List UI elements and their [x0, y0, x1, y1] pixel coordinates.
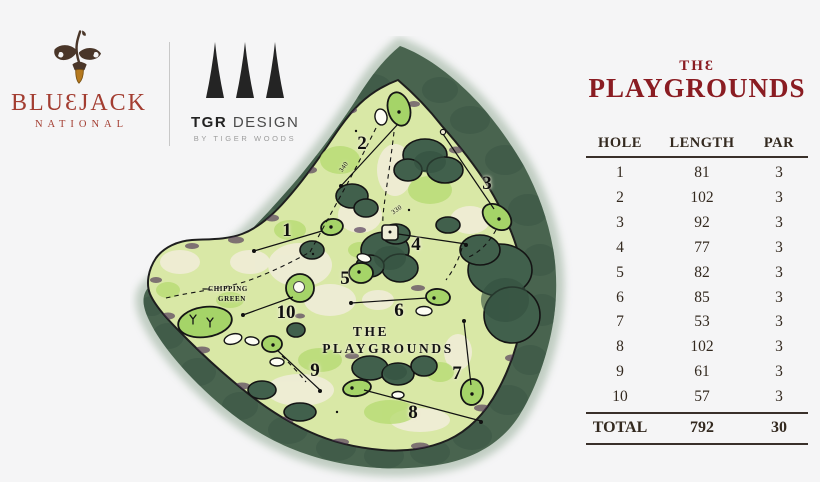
total-par: 30 [741, 414, 817, 441]
hole-cell: 5 [577, 261, 663, 286]
map-chipping-green-label-line2: GREEN [218, 295, 246, 303]
table-row: 10573 [577, 385, 817, 410]
acorn-oak-leaves-icon [46, 28, 112, 90]
hole-cell: 2 [577, 186, 663, 211]
length-cell: 82 [663, 261, 741, 286]
header-divider [586, 156, 808, 158]
map-hole-label-5: 5 [340, 268, 350, 290]
par-cell: 3 [741, 310, 817, 335]
hole-cell: 6 [577, 286, 663, 311]
map-hole-label-3: 3 [482, 173, 492, 195]
par-cell: 3 [741, 236, 817, 261]
map-hole-label-9: 9 [310, 360, 320, 382]
hole-cell: 3 [577, 211, 663, 236]
brand-name: BLUƐJACK [8, 92, 150, 114]
map-course-title-line2: PLAYGROUNDS [322, 341, 454, 357]
scorecard-title-line2: PLAYGROUNDS [577, 75, 817, 101]
map-course-title-line1: THE [353, 324, 389, 340]
par-cell: 3 [741, 186, 817, 211]
map-hole-label-6: 6 [394, 300, 404, 322]
length-cell: 77 [663, 236, 741, 261]
length-cell: 85 [663, 286, 741, 311]
par-cell: 3 [741, 161, 817, 186]
map-hole-label-8: 8 [408, 402, 418, 424]
length-cell: 53 [663, 310, 741, 335]
length-cell: 61 [663, 360, 741, 385]
course-map-svg [130, 36, 575, 482]
length-cell: 81 [663, 161, 741, 186]
hole-cell: 1 [577, 161, 663, 186]
map-hole-label-4: 4 [411, 234, 421, 256]
par-cell: 3 [741, 360, 817, 385]
table-row: 6853 [577, 286, 817, 311]
scorecard: THƐ PLAYGROUNDS HOLE LENGTH PAR 1813 210… [577, 58, 817, 445]
par-cell: 3 [741, 211, 817, 236]
table-row: 4773 [577, 236, 817, 261]
par-cell: 3 [741, 335, 817, 360]
tee-circle [440, 129, 445, 134]
hole-cell: 9 [577, 360, 663, 385]
page: { "brand": { "name": "BLUƐJACK", "subtit… [0, 0, 820, 481]
map-hole-label-7: 7 [452, 363, 462, 385]
total-row: TOTAL 792 30 [577, 414, 817, 441]
green-center-bunker [294, 282, 305, 293]
table-row: 7533 [577, 310, 817, 335]
table-row: 5823 [577, 261, 817, 286]
hole-cell: 8 [577, 335, 663, 360]
map-chipping-green-label-line1: CHIPPING [208, 285, 248, 293]
column-header-length: LENGTH [663, 134, 741, 152]
course-map: 1 2 3 4 5 6 7 8 9 10 CHIPPING GREEN THE … [130, 36, 575, 482]
hole-cell: 4 [577, 236, 663, 261]
length-cell: 102 [663, 335, 741, 360]
par-cell: 3 [741, 286, 817, 311]
table-row: 3923 [577, 211, 817, 236]
scorecard-title-line1: THƐ [577, 58, 817, 74]
length-cell: 57 [663, 385, 741, 410]
total-divider-bottom [586, 443, 808, 445]
table-row: 1813 [577, 161, 817, 186]
length-cell: 92 [663, 211, 741, 236]
table-row: 9613 [577, 360, 817, 385]
scorecard-header-row: HOLE LENGTH PAR [577, 134, 817, 152]
total-length: 792 [663, 414, 741, 441]
length-cell: 102 [663, 186, 741, 211]
column-header-hole: HOLE [577, 134, 663, 152]
par-cell: 3 [741, 261, 817, 286]
hole-cell: 10 [577, 385, 663, 410]
bluejack-logo: BLUƐJACK NATIONAL [8, 28, 150, 132]
table-row: 81023 [577, 335, 817, 360]
map-hole-label-10: 10 [277, 302, 296, 324]
hole-cell: 7 [577, 310, 663, 335]
total-label: TOTAL [577, 414, 663, 441]
brand-subtitle: NATIONAL [8, 118, 150, 132]
table-row: 21023 [577, 186, 817, 211]
scorecard-body: 1813 21023 3923 4773 5823 6853 7533 8102… [577, 161, 817, 410]
column-header-par: PAR [741, 134, 817, 152]
map-hole-label-2: 2 [357, 133, 367, 155]
map-hole-label-1: 1 [282, 220, 292, 242]
par-cell: 3 [741, 385, 817, 410]
